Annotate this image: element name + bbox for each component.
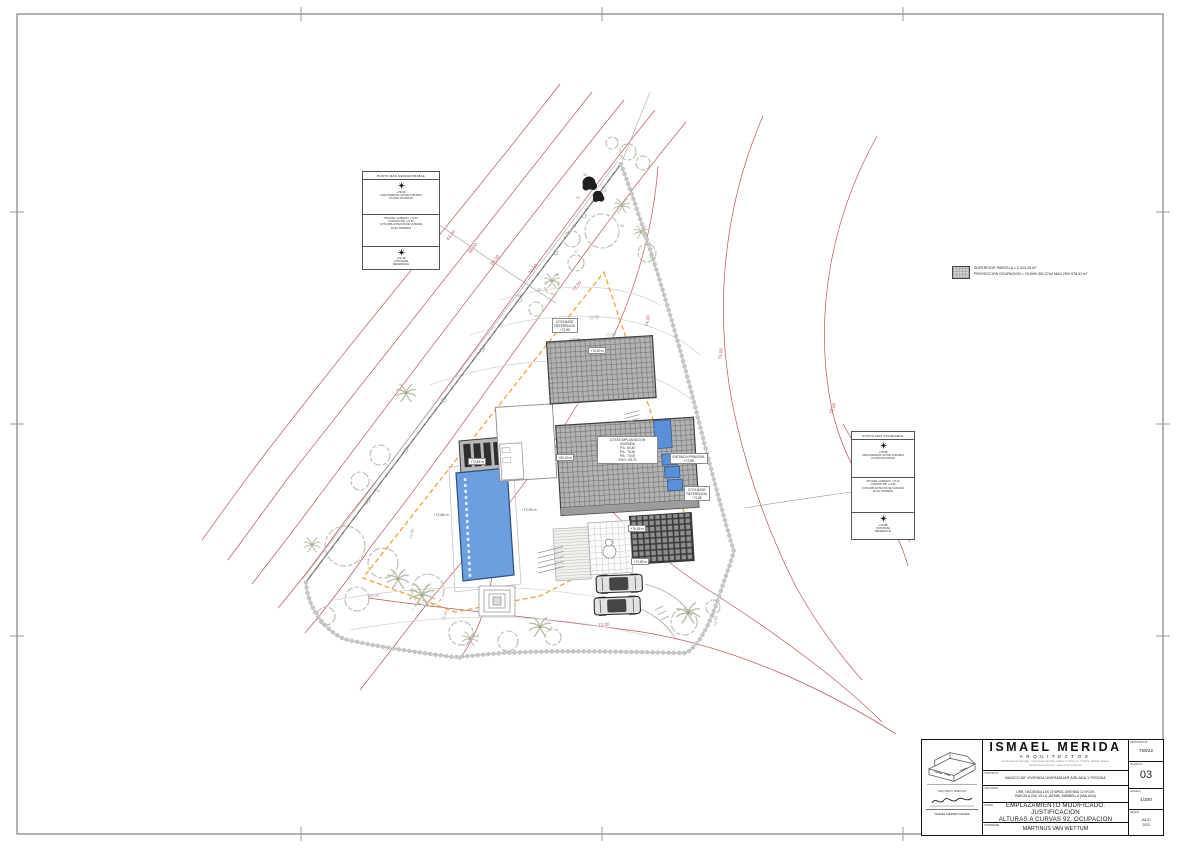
level-label: +76,50 m — [588, 347, 606, 354]
occupancy-legend: SUPERFICIE PARCELA = 2.314,45 m² PROYECC… — [952, 266, 1087, 279]
annotation-title: PUNTO MAS DESFAVORABLE — [363, 172, 439, 180]
level-label: +72,85 m — [631, 558, 649, 565]
date-cell: FECHA JULIO 2023 — [1129, 810, 1163, 835]
studio-header: ISMAEL MERIDA ARQUITECTOS Arquitectura d… — [983, 740, 1128, 771]
deck — [553, 527, 591, 581]
level-note: COTA BASE REFERENCIA — [875, 527, 891, 534]
level-label: COTA BASE REFERENCIA +72,85 — [684, 486, 710, 501]
plan-label: 3 — [477, 634, 479, 638]
plan-label: 24 — [517, 294, 521, 298]
plan-label: 71,00 — [441, 609, 449, 621]
architect-logo-cell: ARQUITECTO DIRECTOR ISMAEL MERIDA GOMEZ — [922, 740, 983, 835]
plan-label: +73,35 m — [521, 508, 536, 512]
sheet-number-value: 03 — [1140, 769, 1152, 781]
level-note: PB NIVEL ACABADO: +73.00 FORJADO PB: +72… — [380, 217, 422, 231]
sheet-number-cell: PLANO Nº 03 — [1129, 762, 1163, 789]
studio-contact: info@ismaelmerida.com · www.ismaelmerida… — [983, 764, 1128, 767]
drawing-sheet: 64,0066,0068,0070,0072,0074,0076,0078,00… — [0, 0, 1200, 848]
site-plan-drawing: 64,0066,0068,0070,0072,0074,0076,0078,00… — [0, 0, 1200, 848]
plan-label: +72,86 m — [433, 513, 448, 517]
project-value: BASICO DE VIVIENDA UNIFAMILIAR AISLADA Y… — [1005, 776, 1106, 780]
plan-label: 1 — [688, 609, 690, 613]
level-marker-icon — [880, 442, 887, 449]
studio-address: Arquitectura de Viviendas · Urbanización… — [983, 760, 1128, 763]
plan-label: 13 — [364, 501, 368, 505]
car — [594, 595, 641, 616]
studio-name: ISMAEL MERIDA — [983, 741, 1128, 754]
north-wing-roof — [547, 336, 657, 404]
plan-title-value: EMPLAZAMIENTO MODIFICADO. JUSTIFICACION … — [983, 802, 1128, 823]
sheet-number-label: PLANO Nº — [1131, 763, 1143, 766]
location-label: SITUACION — [985, 787, 999, 790]
level-label: COTAS IMPLANTACION VIVIENDA P.S.: 80,40 … — [597, 436, 658, 464]
car — [596, 573, 643, 594]
occupancy-text: PROYECCION OCUPACION = 16,94% 392,27m² M… — [974, 272, 1087, 278]
studio-subtitle: ARQUITECTOS — [983, 754, 1128, 759]
plan-label: 73,00 — [713, 615, 719, 627]
date-label: FECHA — [1131, 811, 1139, 814]
location-row: SITUACION URB. HACIENDA LAS CHAPAS, AVEN… — [983, 786, 1128, 803]
occupancy-hatch-swatch — [952, 266, 970, 279]
plan-label: 74,00 — [644, 314, 651, 327]
plan-label: 34 — [583, 173, 587, 177]
plan-label: 70,00 — [588, 314, 600, 321]
director-label: ARQUITECTO DIRECTOR — [938, 791, 966, 793]
level-note: PB NIVEL ACABADO: +73.00 FORJADO PB: +72… — [862, 480, 904, 494]
plan-label: 25 — [537, 288, 541, 292]
parked-cars — [594, 573, 643, 616]
annotation-worst-point: PUNTO MAS DESFAVORABLE +79.30 CARA INFER… — [362, 171, 440, 270]
project-number-value: 766/22 — [1139, 748, 1153, 753]
plan-label: 7 — [412, 608, 414, 612]
level-note: CARA INFERIOR ULTIMO FORJADO PLANTA SOLA… — [380, 194, 422, 201]
plan-label: 14 — [376, 489, 380, 493]
level-label: COTA BASE REFERENCIA +72,85 — [552, 318, 578, 333]
plan-label: 33 — [576, 196, 580, 200]
pergola — [629, 513, 694, 565]
plan-label: 26 — [555, 273, 559, 277]
plan-label: 30 — [620, 224, 624, 228]
plan-label: 76,00 — [717, 347, 723, 359]
plan-label: 72,00 — [598, 621, 610, 627]
level-marker-icon — [880, 515, 887, 522]
level-marker-icon — [398, 249, 405, 256]
plan-label: 66,00 — [467, 242, 478, 254]
level-label: ENTRADA PRINCIPAL +72,86 — [670, 453, 708, 464]
project-number-label: PROYECTO Nº — [1131, 741, 1148, 744]
scale-cell: ESCALA 1/200 — [1129, 789, 1163, 810]
scale-value: 1/200 — [1140, 797, 1152, 802]
plan-label: 71,00 — [605, 331, 617, 338]
level-marker-icon — [398, 182, 405, 189]
plan-label: 69,00 — [368, 593, 380, 599]
owner-label: PROPIEDAD — [985, 824, 1000, 827]
project-number-cell: PROYECTO Nº 766/22 — [1129, 740, 1163, 762]
annotation-best-point: PUNTO MAS FAVORABLE +79.30 CARA INFERIOR… — [851, 431, 915, 540]
plan-label: 31 — [649, 255, 653, 259]
plan-label: 27 — [574, 250, 578, 254]
plan-label: 72,00 — [571, 280, 582, 292]
location-value: URB. HACIENDA LAS CHAPAS, AVENIDA 12 Nº1… — [1015, 790, 1096, 799]
project-row: PROYECTO BASICO DE VIVIENDA UNIFAMILIAR … — [983, 771, 1128, 786]
level-label: +76,85 m — [628, 525, 646, 532]
plan-label: +73,65 m — [569, 338, 584, 342]
level-note: COTA BASE REFERENCIA — [393, 260, 409, 267]
plan-label: 22 — [481, 346, 485, 350]
plan-label: 2 — [550, 626, 552, 630]
owner-value: MARTINUS VAN WETTUM — [1023, 826, 1088, 832]
level-label: +72,86 m — [468, 458, 486, 465]
annotation-title: PUNTO MAS FAVORABLE — [852, 432, 914, 440]
owner-row: PROPIEDAD MARTINUS VAN WETTUM — [983, 823, 1128, 835]
fountain — [479, 586, 515, 616]
date-value: JULIO 2023 — [1141, 818, 1150, 826]
plan-label: 28 — [572, 224, 576, 228]
level-note: CARA INFERIOR ULTIMO FORJADO PLANTA SOLA… — [862, 454, 904, 461]
plan-title-row: PLANO EMPLAZAMIENTO MODIFICADO. JUSTIFIC… — [983, 803, 1128, 823]
project-label: PROYECTO — [985, 772, 999, 775]
iso-house-sketch-icon — [924, 742, 980, 790]
director-name: ISMAEL MERIDA GOMEZ — [926, 809, 978, 816]
level-label: +80,00 m — [556, 454, 574, 461]
title-block: ARQUITECTO DIRECTOR ISMAEL MERIDA GOMEZ … — [921, 739, 1164, 836]
scale-label: ESCALA — [1131, 790, 1141, 793]
signature-icon — [928, 794, 976, 808]
contour-lines-red — [202, 84, 910, 734]
plan-label: 72,00 — [408, 527, 415, 539]
plan-label: PLANO — [985, 804, 993, 807]
plan-label: 78,00 — [828, 402, 837, 415]
